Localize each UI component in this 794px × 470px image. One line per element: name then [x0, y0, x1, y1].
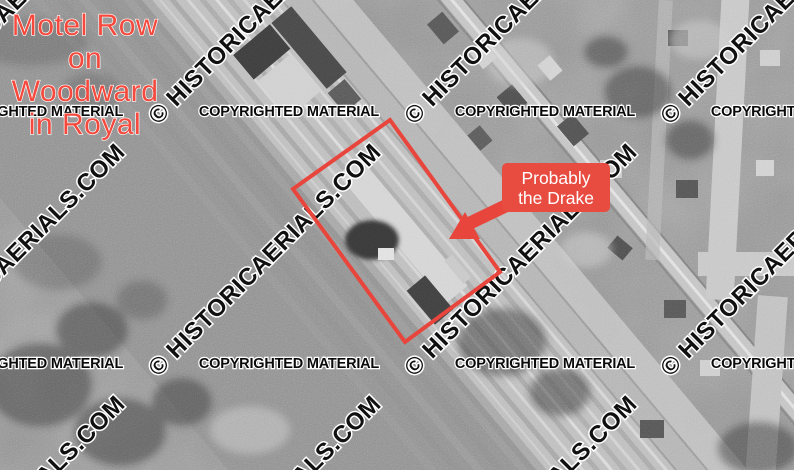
callout-text-line: Probably: [521, 168, 590, 188]
aerial-photo: © HISTORICAERIALS.COMCOPYRIGHTED MATERIA…: [0, 0, 794, 470]
watermark-copyright-text: COPYRIGHTED MATERIAL: [455, 356, 636, 372]
watermark-copyright-text: COPYRIGHTED MATERIAL: [199, 104, 380, 120]
title-line: Woodward: [12, 75, 159, 108]
watermark-copyright-text: COPYRIGHTED MATERIAL: [455, 104, 636, 120]
watermark-copyright-text: COPYRIGHTED MATERIAL: [199, 356, 380, 372]
callout: Probably the Drake: [502, 163, 610, 212]
title-line: in Royal: [29, 108, 141, 141]
title-annotation: Motel Row on Woodward in Royal: [12, 9, 159, 141]
title-line: Motel Row: [12, 9, 158, 42]
title-line: on: [68, 42, 102, 75]
aerial-viewer: © HISTORICAERIALS.COMCOPYRIGHTED MATERIA…: [0, 0, 794, 470]
watermark-copyright-text: COPYRIGHTED MATERIAL: [0, 356, 123, 372]
watermark-copyright-text: COPYRIGHTED MATERIAL: [711, 104, 794, 120]
callout-text-line: the Drake: [518, 188, 594, 208]
watermark-copyright-text: COPYRIGHTED MATERIAL: [711, 356, 794, 372]
